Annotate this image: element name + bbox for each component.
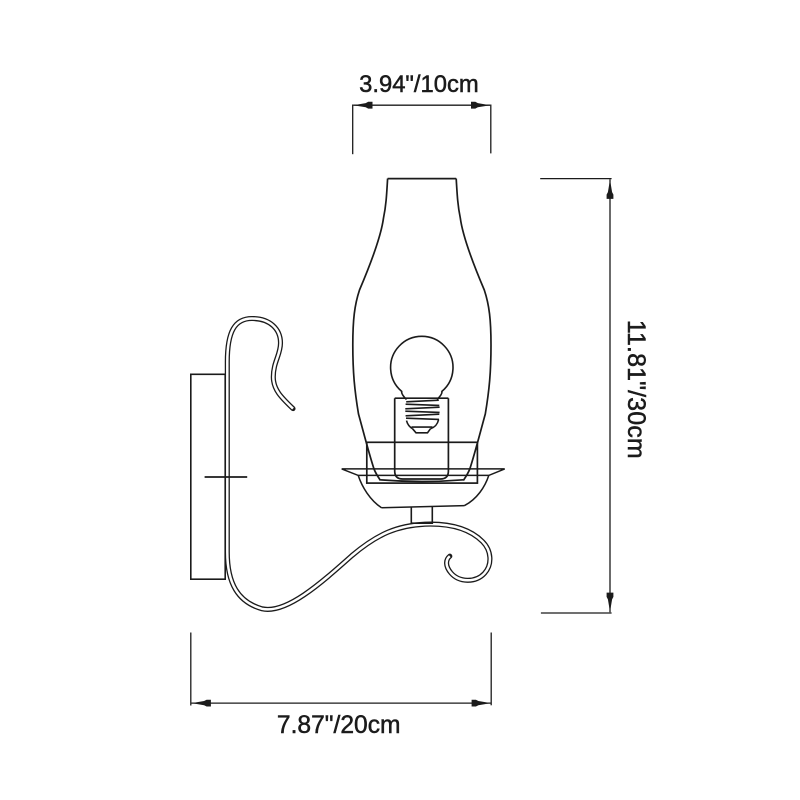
svg-text:7.87"/20cm: 7.87"/20cm	[277, 712, 401, 739]
svg-text:11.81"/30cm: 11.81"/30cm	[622, 320, 650, 459]
svg-text:3.94"/10cm: 3.94"/10cm	[359, 71, 479, 98]
